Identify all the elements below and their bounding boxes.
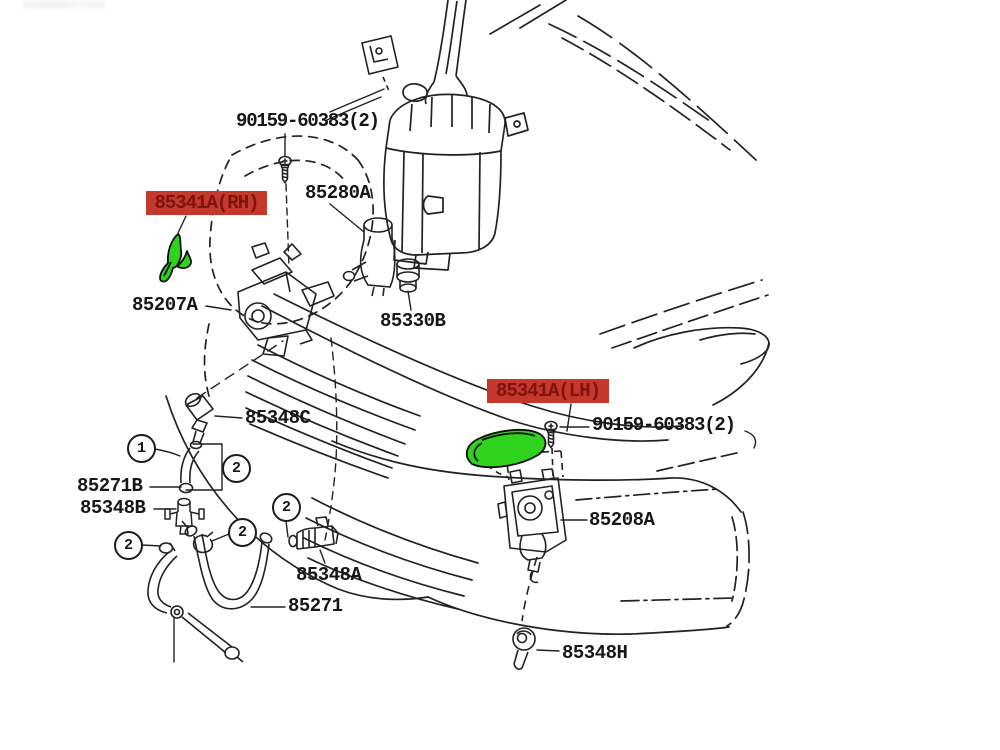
- hose-85271b: [180, 448, 200, 493]
- part-label-85271b: 85271B: [77, 476, 142, 497]
- actuator-lh-85208a: [487, 448, 566, 621]
- part-label-85330b: 85330B: [380, 311, 445, 332]
- reservoir-bracket: [362, 36, 398, 91]
- callout-circle-2c: 2: [228, 518, 257, 547]
- callout-circle-2b: 2: [272, 493, 301, 522]
- grommet-85348h: [513, 628, 535, 669]
- grommet-85330b: [397, 259, 419, 292]
- part-label-85348h: 85348H: [562, 643, 627, 664]
- part-label-85348a: 85348A: [296, 565, 361, 586]
- part-label-85271: 85271: [288, 596, 343, 617]
- diagram-line-art: [0, 0, 1000, 750]
- callout-circle-2a: 2: [222, 454, 251, 483]
- part-label-cover-lh-highlighted: 85341A(LH): [487, 379, 609, 403]
- parts-diagram-canvas: 85341A(RH) 85341A(LH) 90159-60383(2) 852…: [0, 0, 1000, 750]
- hose-left-run: [148, 543, 243, 662]
- washer-reservoir: [384, 0, 528, 270]
- part-label-85348b: 85348B: [80, 498, 145, 519]
- part-label-bolt-top: 90159-60383(2): [236, 111, 379, 132]
- cover-rh-green-part: [160, 234, 191, 282]
- part-label-85280a: 85280A: [305, 183, 370, 204]
- part-label-85348c: 85348C: [245, 408, 310, 429]
- screw-top: [279, 157, 291, 183]
- part-label-85208a: 85208A: [589, 510, 654, 531]
- part-label-bolt-right: 90159-60383(2): [592, 415, 735, 436]
- washer-pump-85280a: [344, 218, 395, 296]
- cover-lh-green-part: [467, 430, 546, 467]
- part-label-85207a: 85207A: [132, 295, 197, 316]
- callout-circle-2d: 2: [114, 531, 143, 560]
- part-label-cover-rh-highlighted: 85341A(RH): [146, 191, 267, 215]
- screw-right: [545, 422, 557, 448]
- joint-85348c: [183, 391, 213, 448]
- callout-circle-1: 1: [127, 434, 156, 463]
- valve-85348b: [165, 499, 204, 535]
